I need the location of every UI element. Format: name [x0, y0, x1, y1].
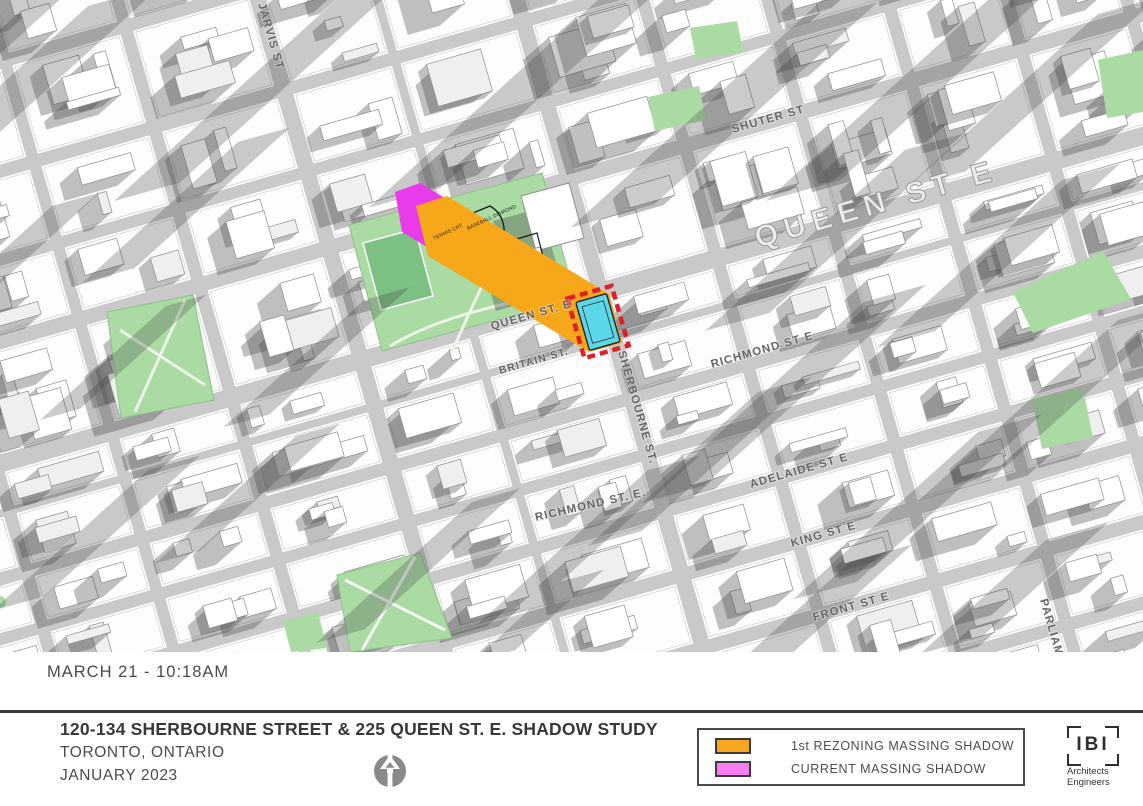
- map-canvas: JARVIS ST SHUTER ST QUEEN ST E QUEEN ST.…: [0, 0, 1143, 652]
- sheet-location: TORONTO, ONTARIO: [60, 744, 225, 762]
- legend-row-current: CURRENT MASSING SHADOW: [715, 760, 986, 778]
- timestamp-label: MARCH 21 - 10:18AM: [47, 663, 229, 682]
- shadow-study-sheet: JARVIS ST SHUTER ST QUEEN ST E QUEEN ST.…: [0, 0, 1143, 806]
- shadow-study-map: JARVIS ST SHUTER ST QUEEN ST E QUEEN ST.…: [0, 0, 1143, 652]
- legend-label-rezoning: 1st REZONING MASSING SHADOW: [791, 739, 1014, 753]
- ibi-logo-mark: IBI: [1067, 726, 1119, 766]
- legend-row-rezoning: 1st REZONING MASSING SHADOW: [715, 737, 1014, 755]
- ibi-logo-line2: Engineers: [1067, 777, 1125, 788]
- ibi-logo-line1: Architects: [1067, 766, 1125, 777]
- sheet-date: JANUARY 2023: [60, 767, 178, 785]
- ibi-logo: IBI Architects Engineers: [1061, 726, 1125, 788]
- sheet-title: 120-134 SHERBOURNE STREET & 225 QUEEN ST…: [60, 719, 658, 740]
- legend-label-current: CURRENT MASSING SHADOW: [791, 762, 986, 776]
- legend-swatch-rezoning: [715, 738, 751, 754]
- ibi-logo-text: IBI: [1067, 734, 1119, 756]
- divider-rule: [0, 710, 1143, 713]
- north-arrow-icon: [372, 753, 408, 789]
- legend-swatch-current: [715, 761, 751, 777]
- legend-box: 1st REZONING MASSING SHADOW CURRENT MASS…: [697, 728, 1025, 786]
